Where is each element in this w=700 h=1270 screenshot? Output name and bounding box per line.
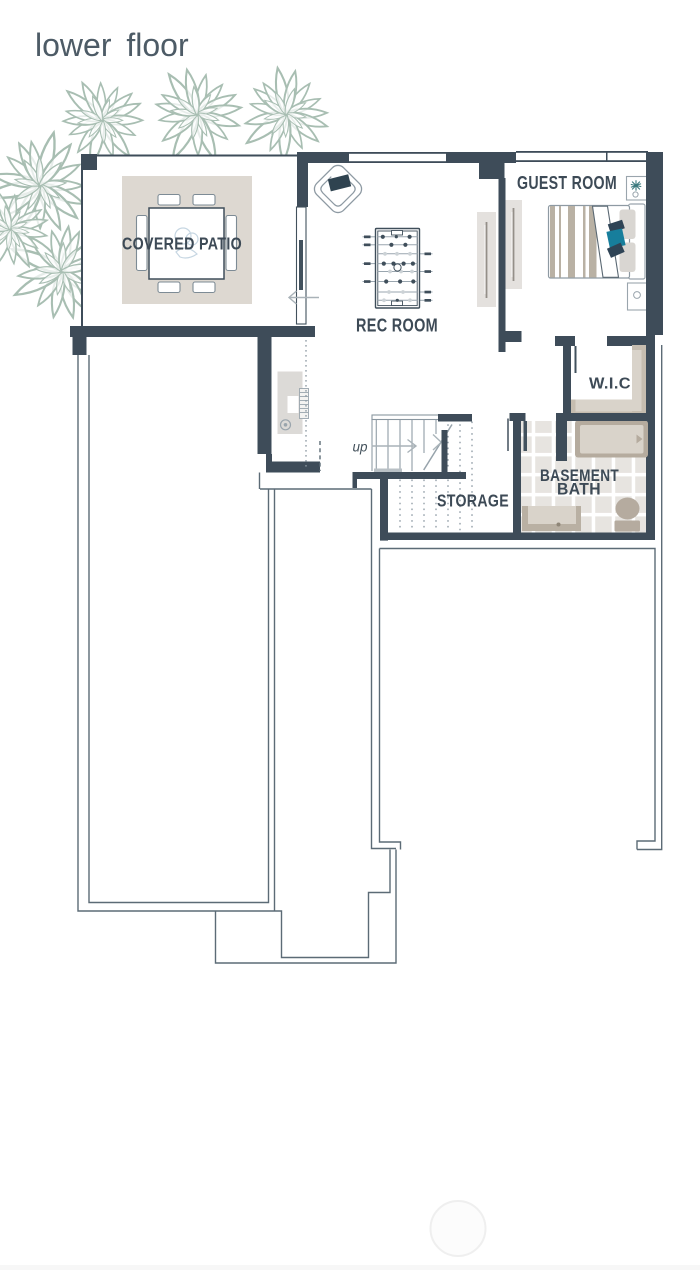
svg-text:BATH: BATH xyxy=(557,481,601,499)
svg-text:lower floor: lower floor xyxy=(35,27,189,63)
svg-text:COVERED PATIO: COVERED PATIO xyxy=(122,234,242,254)
svg-text:REC ROOM: REC ROOM xyxy=(356,315,438,336)
svg-text:GUEST ROOM: GUEST ROOM xyxy=(517,172,617,193)
svg-text:STORAGE: STORAGE xyxy=(437,491,509,511)
svg-text:up: up xyxy=(352,440,368,455)
svg-text:W.I.C: W.I.C xyxy=(589,376,631,393)
